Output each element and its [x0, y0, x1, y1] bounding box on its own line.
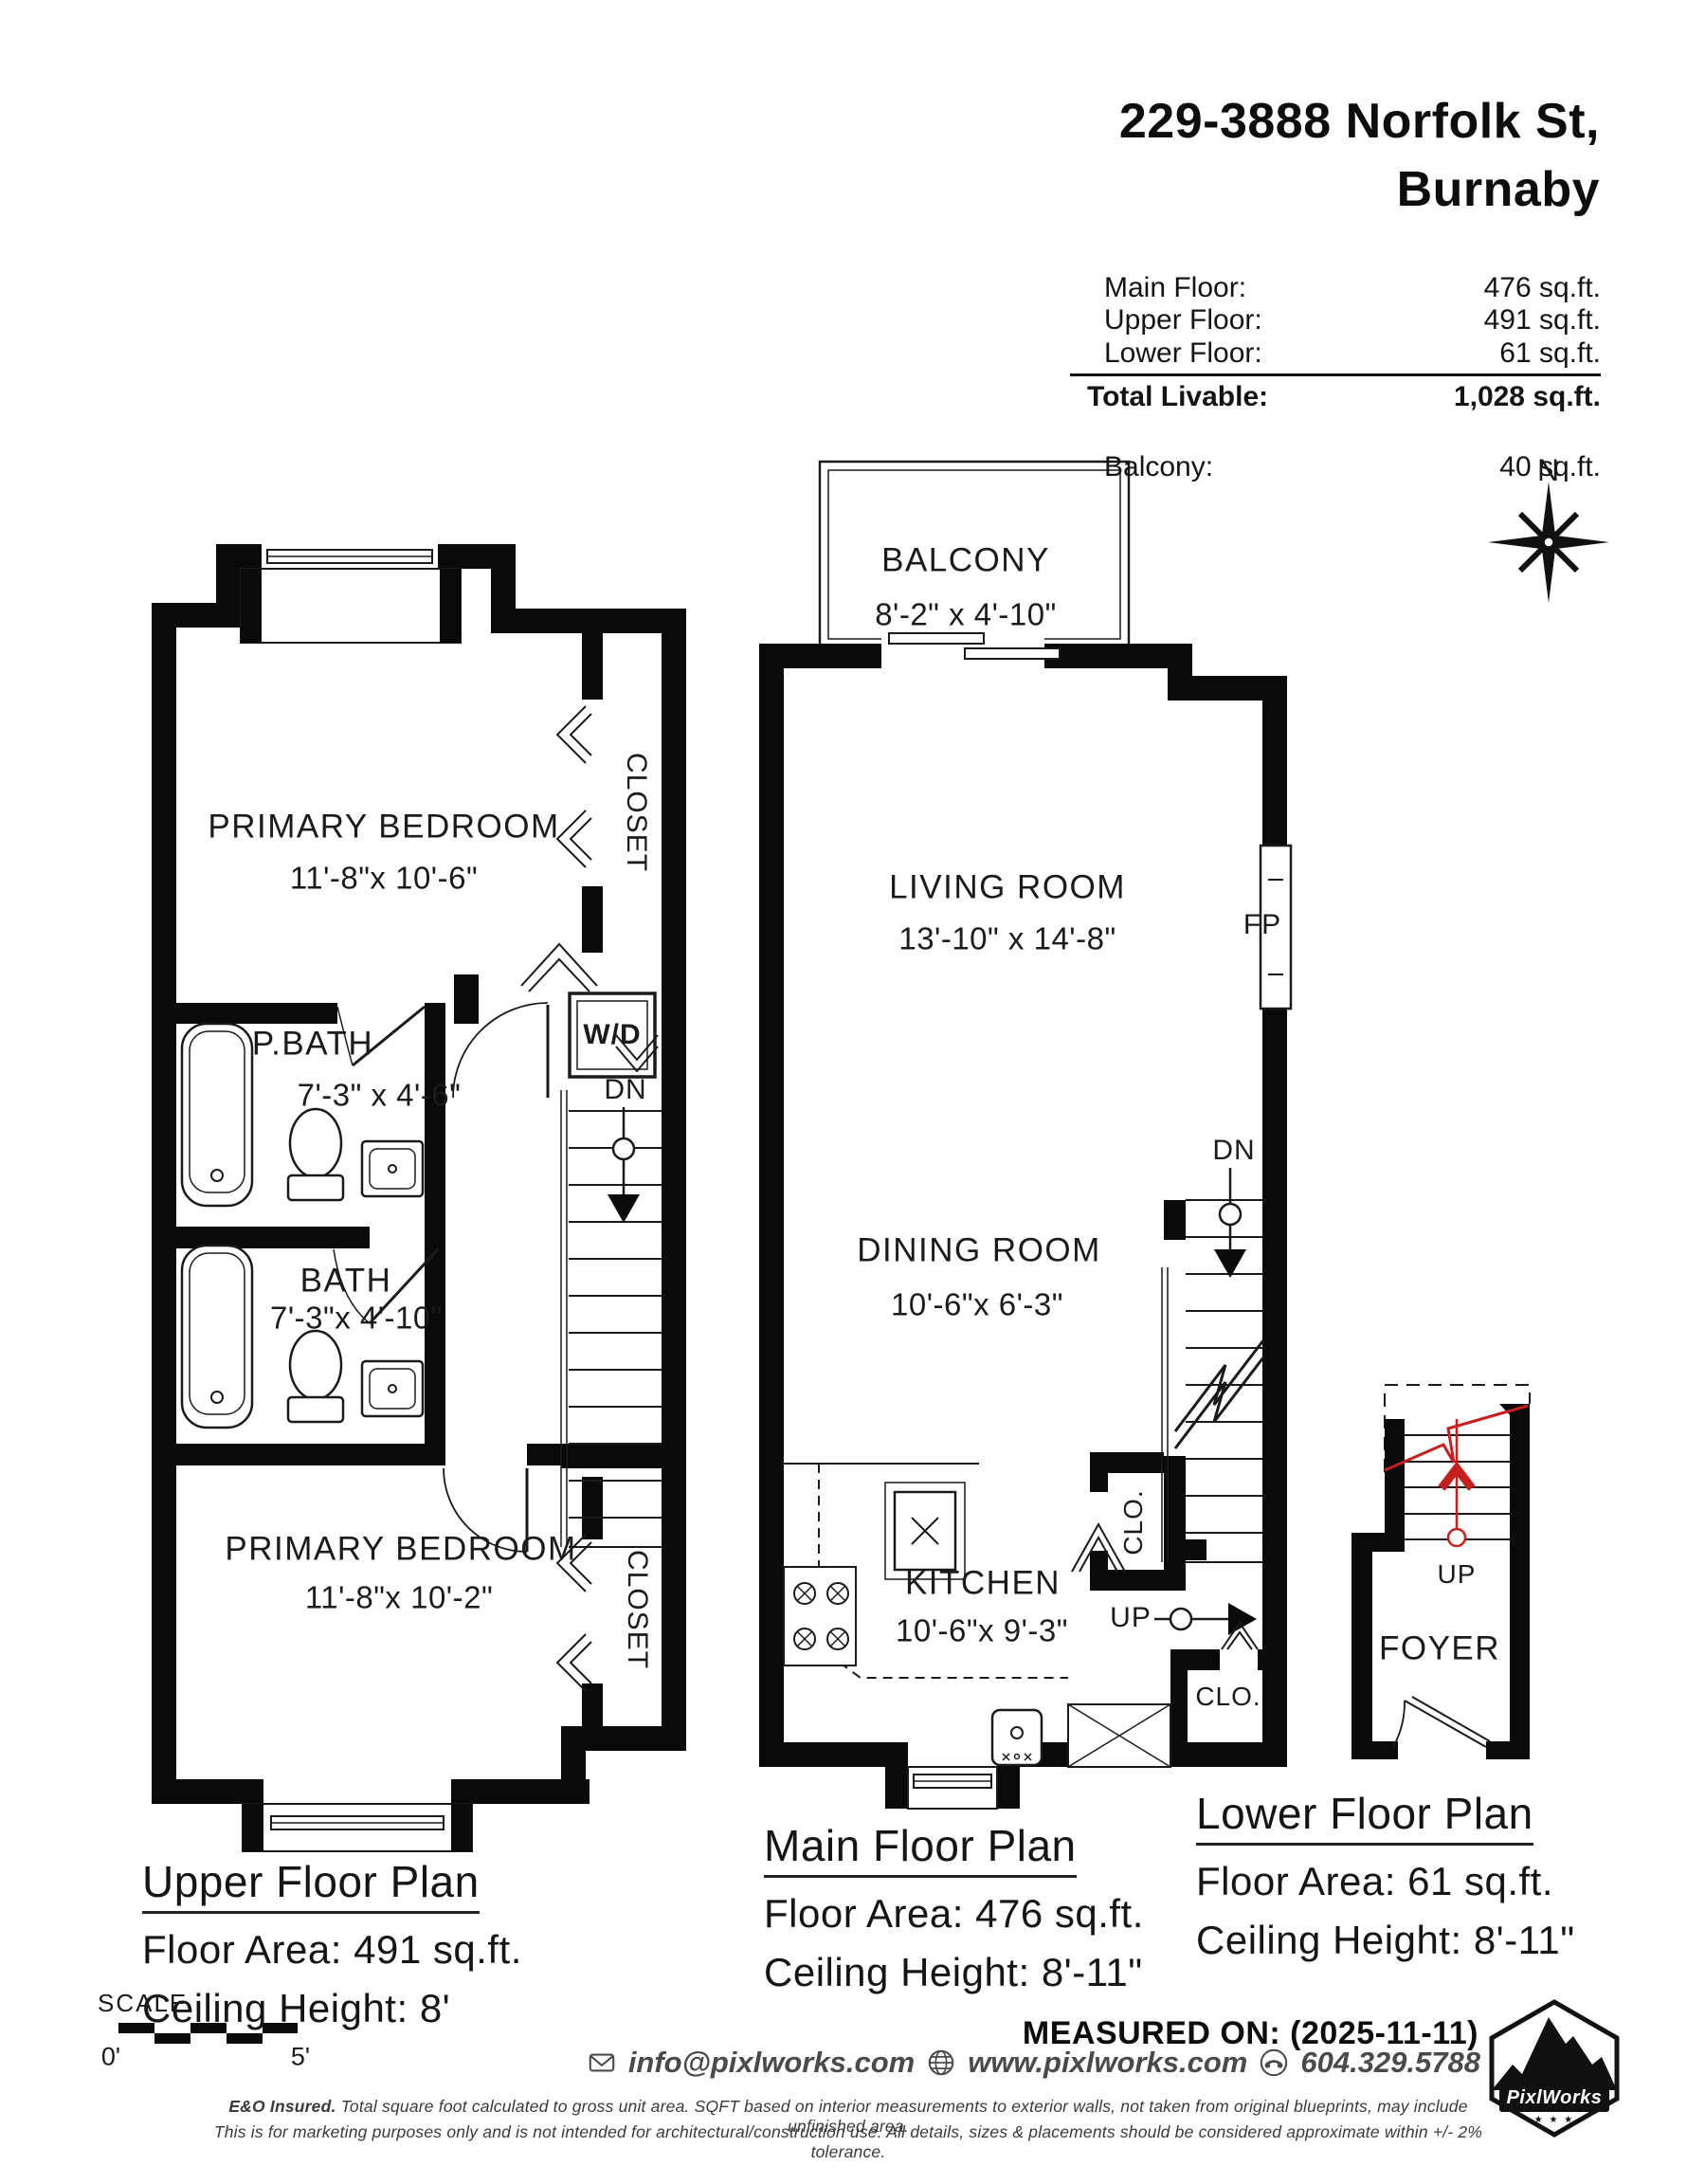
sink-icon: [362, 1361, 423, 1416]
stair-direction-arrow-up-lower: [1385, 1406, 1528, 1546]
room-label-foyer: FOYER: [1379, 1632, 1500, 1665]
room-label-closet-top: CLOSET: [622, 753, 650, 872]
area-value: 491 sq.ft.: [1484, 304, 1601, 337]
room-label-pbath: P.BATH: [252, 1028, 373, 1061]
sink-icon: [362, 1141, 423, 1196]
stair-label-up: UP: [1438, 1561, 1477, 1588]
room-label-primary-bedroom-bottom: PRIMARY BEDROOM: [225, 1533, 576, 1566]
stair-direction-arrow-dn-main: [1214, 1168, 1246, 1278]
kitchen-sink-icon: [992, 1710, 1042, 1765]
phone-icon: [1259, 2047, 1289, 2078]
dishwasher-icon: [1068, 1704, 1170, 1767]
room-label-dining: DINING ROOM: [857, 1234, 1101, 1267]
stair-label-up: UP: [1110, 1604, 1152, 1632]
room-label-wd: W/D: [583, 1021, 641, 1049]
main-plan-title-block: Main Floor Plan Floor Area: 476 sq.ft. C…: [764, 1820, 1144, 1995]
lower-plan-title-block: Lower Floor Plan Floor Area: 61 sq.ft. C…: [1196, 1788, 1575, 1963]
fireplace-label: FP: [1243, 911, 1281, 939]
address-line1: 229-3888 Norfolk St,: [1119, 93, 1600, 150]
window-icon-upper-top: [241, 544, 461, 643]
room-label-primary-bedroom-top: PRIMARY BEDROOM: [208, 810, 559, 844]
upper-plan-title-block: Upper Floor Plan Floor Area: 491 sq.ft. …: [142, 1856, 522, 2031]
room-label-closet-mid: CLO.: [1120, 1489, 1147, 1555]
disclaimer-line2: This is for marketing purposes only and …: [213, 2122, 1483, 2162]
email-icon: [587, 2047, 617, 2078]
room-dims: 10'-6"x 6'-3": [891, 1289, 1063, 1320]
stair-label-dn: DN: [1212, 1137, 1255, 1165]
area-label: Main Floor:: [1070, 272, 1246, 304]
toilet-icon: [288, 1331, 343, 1422]
area-label: Lower Floor:: [1070, 337, 1262, 370]
plan-title: Lower Floor Plan: [1196, 1788, 1533, 1846]
plan-floor-area: Floor Area: 491 sq.ft.: [142, 1927, 522, 1973]
sliding-door-icon: [881, 633, 1060, 675]
stairs-upper: [561, 1035, 662, 1547]
compass-rose-icon: [1488, 482, 1609, 603]
plan-floor-area: Floor Area: 476 sq.ft.: [764, 1891, 1144, 1937]
logo-stars-icon: ★ ★ ★: [1534, 2116, 1574, 2125]
address-line2: Burnaby: [1397, 161, 1600, 218]
area-row-lower: Lower Floor: 61 sq.ft.: [1070, 337, 1601, 370]
room-label-closet-bottom: CLOSET: [623, 1550, 651, 1669]
room-dims: 7'-3"x 4'-10": [270, 1302, 443, 1334]
contact-phone[interactable]: 604.329.5788: [1300, 2046, 1480, 2080]
disclaimer-bold: E&O Insured.: [228, 2097, 336, 2116]
contact-website[interactable]: www.pixlworks.com: [968, 2046, 1247, 2080]
total-value: 1,028 sq.ft.: [1454, 381, 1601, 413]
room-label-kitchen: KITCHEN: [905, 1567, 1061, 1600]
floor-plan-page: 229-3888 Norfolk St, Burnaby Main Floor:…: [0, 0, 1687, 2184]
scale-zero-label: 0': [101, 2045, 120, 2070]
compass-north-label: N: [1537, 455, 1560, 485]
contact-row: info@pixlworks.com www.pixlworks.com 604…: [587, 2046, 1480, 2080]
scale-five-label: 5': [291, 2045, 310, 2070]
bathtub-icon: [182, 1246, 252, 1428]
balcony-label: Balcony:: [1070, 451, 1213, 483]
room-label-balcony: BALCONY: [881, 544, 1050, 577]
area-row-main: Main Floor: 476 sq.ft.: [1070, 272, 1601, 304]
bathtub-icon: [182, 1024, 252, 1206]
plan-title: Main Floor Plan: [764, 1820, 1077, 1878]
room-label-living: LIVING ROOM: [889, 871, 1126, 904]
window-icon-upper-bottom: [243, 1779, 472, 1851]
total-label: Total Livable:: [1070, 381, 1268, 413]
globe-icon: [926, 2047, 956, 2078]
plan-ceiling-height: Ceiling Height: 8'-11": [764, 1950, 1144, 1995]
area-row-upper: Upper Floor: 491 sq.ft.: [1070, 304, 1601, 337]
door-swing-icon: [1393, 1697, 1490, 1747]
area-row-balcony: Balcony: 40 sq.ft.: [1070, 451, 1601, 483]
foyer-door-opening: [1398, 1741, 1486, 1759]
stove-icon: [784, 1567, 856, 1665]
area-row-total: Total Livable: 1,028 sq.ft.: [1070, 381, 1601, 413]
room-label-closet-bottom: CLO.: [1195, 1683, 1261, 1710]
stair-label-dn: DN: [604, 1076, 646, 1104]
stair-direction-arrow-dn: [608, 1107, 640, 1223]
plan-ceiling-height: Ceiling Height: 8'-11": [1196, 1918, 1575, 1963]
room-dims: 10'-6"x 9'-3": [896, 1615, 1068, 1647]
room-dims: 7'-3" x 4'-6": [298, 1080, 462, 1111]
stair-direction-arrow-up-main: [1154, 1603, 1257, 1635]
plan-title: Upper Floor Plan: [142, 1856, 480, 1914]
room-dims: 13'-10" x 14'-8": [898, 923, 1116, 955]
logo-wordmark: PixlWorks: [1507, 2088, 1603, 2107]
room-dims: 8'-2" x 4'-10": [875, 599, 1057, 630]
area-value: 61 sq.ft.: [1499, 337, 1601, 370]
area-value: 476 sq.ft.: [1484, 272, 1601, 304]
contact-email[interactable]: info@pixlworks.com: [628, 2046, 915, 2080]
total-divider: [1070, 373, 1601, 376]
plan-ceiling-height: Ceiling Height: 8': [142, 1986, 522, 2031]
room-dims: 11'-8"x 10'-2": [305, 1582, 493, 1613]
room-label-bath: BATH: [300, 1265, 392, 1298]
scale-label: SCALE: [98, 1989, 188, 2018]
plan-floor-area: Floor Area: 61 sq.ft.: [1196, 1859, 1575, 1904]
toilet-icon: [288, 1109, 343, 1200]
room-dims: 11'-8"x 10'-6": [290, 863, 478, 894]
area-label: Upper Floor:: [1070, 304, 1262, 337]
